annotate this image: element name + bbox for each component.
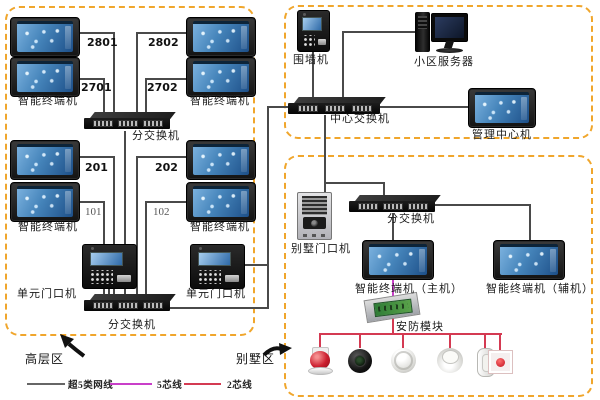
- villa-door-device: [297, 192, 332, 240]
- management-label: 管理中心机: [472, 126, 532, 142]
- terminal-aux-label: 智能终端机（辅机）: [486, 280, 594, 296]
- terminal-device: [186, 57, 256, 97]
- room-number: 2802: [148, 36, 179, 49]
- wire: [434, 204, 530, 206]
- highrise-zone-label: 高层区: [25, 350, 64, 367]
- terminal-device: [10, 182, 80, 222]
- wall-machine-label: 围墙机: [293, 51, 329, 67]
- terminal-device: [10, 17, 80, 57]
- wire: [342, 31, 417, 33]
- room-number: 201: [85, 161, 108, 174]
- camera-lens-icon: [348, 349, 372, 373]
- wire-2core: [359, 333, 361, 348]
- wire: [136, 156, 186, 158]
- terminal-label: 智能终端机: [18, 92, 78, 108]
- server-label: 小区服务器: [414, 53, 474, 69]
- unit-door-label: 单元门口机: [17, 285, 77, 301]
- room-number: 102: [153, 206, 170, 218]
- terminal-label: 智能终端机: [18, 218, 78, 234]
- wire-2core: [402, 333, 404, 348]
- wire-2core: [499, 333, 501, 350]
- terminal-device: [10, 140, 80, 180]
- security-module-label: 安防模块: [396, 318, 444, 334]
- wire: [78, 156, 115, 158]
- terminal-device: [10, 57, 80, 97]
- wall-machine-device: [297, 10, 330, 52]
- unit-door-label: 单元门口机: [186, 285, 246, 301]
- legend-2core-label: 2芯线: [227, 377, 252, 391]
- wire: [342, 31, 344, 98]
- wire: [78, 32, 115, 34]
- villa-zone-label: 别墅区: [236, 350, 275, 367]
- wire: [378, 106, 468, 108]
- room-number: 2701: [81, 81, 112, 94]
- wire: [170, 307, 269, 309]
- wire-2core: [484, 333, 486, 348]
- center-switch-label: 中心交换机: [330, 110, 390, 126]
- villa-door-label: 别墅门口机: [291, 240, 351, 256]
- legend-cat5e-line: [27, 383, 65, 385]
- emergency-button-icon: [488, 350, 513, 374]
- legend-cat5e-label: 超5类网线: [68, 377, 113, 391]
- room-number: 2702: [147, 81, 178, 94]
- unit-door-device: [82, 244, 137, 289]
- wire-2core: [449, 333, 451, 348]
- villa-terminal-aux-device: [493, 240, 565, 280]
- wire: [324, 115, 326, 192]
- room-number: 202: [155, 161, 178, 174]
- terminal-label: 智能终端机: [190, 218, 250, 234]
- server-device: [414, 11, 468, 57]
- wire: [78, 201, 105, 203]
- wire: [267, 106, 289, 108]
- villa-terminal-main-device: [362, 240, 434, 280]
- legend-2core-line: [184, 383, 221, 385]
- terminal-device: [186, 140, 256, 180]
- terminal-label: 智能终端机: [190, 92, 250, 108]
- heat-detector-icon: [437, 348, 463, 373]
- terminal-device: [186, 17, 256, 57]
- wire: [145, 201, 147, 295]
- wire: [324, 182, 385, 184]
- wire: [136, 32, 186, 34]
- room-number: 2801: [87, 36, 118, 49]
- unit-door-device: [190, 244, 245, 289]
- wire: [243, 264, 269, 266]
- smoke-detector-icon: [391, 348, 416, 373]
- wire: [78, 78, 105, 80]
- legend-5core-line: [110, 383, 152, 385]
- sub-switch-label: 分交换机: [132, 127, 180, 143]
- wire: [529, 204, 531, 240]
- sub-switch-device: [84, 294, 170, 312]
- room-number: 101: [85, 206, 102, 218]
- sub-switch-label: 分交换机: [387, 210, 435, 226]
- management-terminal-device: [468, 88, 536, 128]
- wire: [383, 182, 385, 196]
- wire: [145, 201, 186, 203]
- legend-5core-label: 5芯线: [157, 377, 182, 391]
- alarm-siren-icon: [308, 347, 332, 375]
- wire-2core: [319, 333, 321, 348]
- network-topology-diagram: 2801 2802 2701 2702 201 202 101 102 智能终端…: [0, 0, 600, 400]
- wire: [136, 32, 138, 113]
- terminal-main-label: 智能终端机（主机）: [355, 280, 463, 296]
- wire: [267, 106, 269, 309]
- sub-switch-label: 分交换机: [108, 316, 156, 332]
- terminal-device: [186, 182, 256, 222]
- wire: [145, 78, 186, 80]
